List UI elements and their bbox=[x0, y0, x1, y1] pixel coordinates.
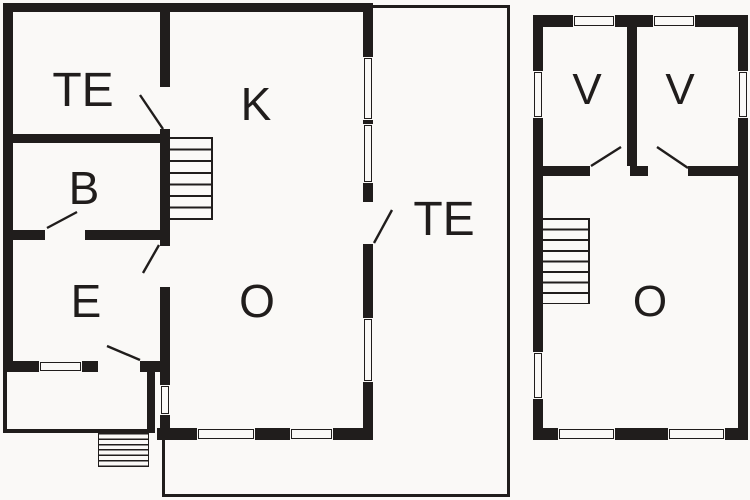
uf-window-landing-south-2 bbox=[668, 428, 725, 440]
room-label-kitchen: K bbox=[241, 81, 272, 127]
uf-window-bedroom-right-north bbox=[653, 15, 695, 27]
uf-door-opening-bedroom-right bbox=[648, 166, 688, 176]
room-label-entry: E bbox=[71, 278, 102, 324]
uf-staircase bbox=[543, 218, 590, 304]
uf-hall-wall bbox=[533, 166, 748, 176]
uf-window-bedroom-left-west bbox=[533, 71, 543, 118]
room-label-bedroom-left: V bbox=[572, 68, 601, 112]
uf-window-landing-south-1 bbox=[558, 428, 615, 440]
room-label-bathroom: B bbox=[69, 165, 100, 211]
floor-plan-canvas: TE K B E O TE V V O bbox=[0, 0, 750, 500]
room-label-living-room: O bbox=[239, 278, 275, 324]
uf-window-landing-west bbox=[533, 352, 543, 399]
uf-middle-wall bbox=[627, 15, 637, 176]
room-label-terrace-room: TE bbox=[52, 67, 113, 115]
room-label-terrace: TE bbox=[413, 196, 474, 244]
uf-top-wall bbox=[533, 15, 748, 27]
uf-window-bedroom-right-east bbox=[738, 71, 748, 118]
room-label-bedroom-right: V bbox=[665, 68, 694, 112]
uf-window-bedroom-left-north bbox=[573, 15, 615, 27]
uf-door-opening-bedroom-left bbox=[590, 166, 630, 176]
room-label-landing: O bbox=[633, 280, 667, 324]
